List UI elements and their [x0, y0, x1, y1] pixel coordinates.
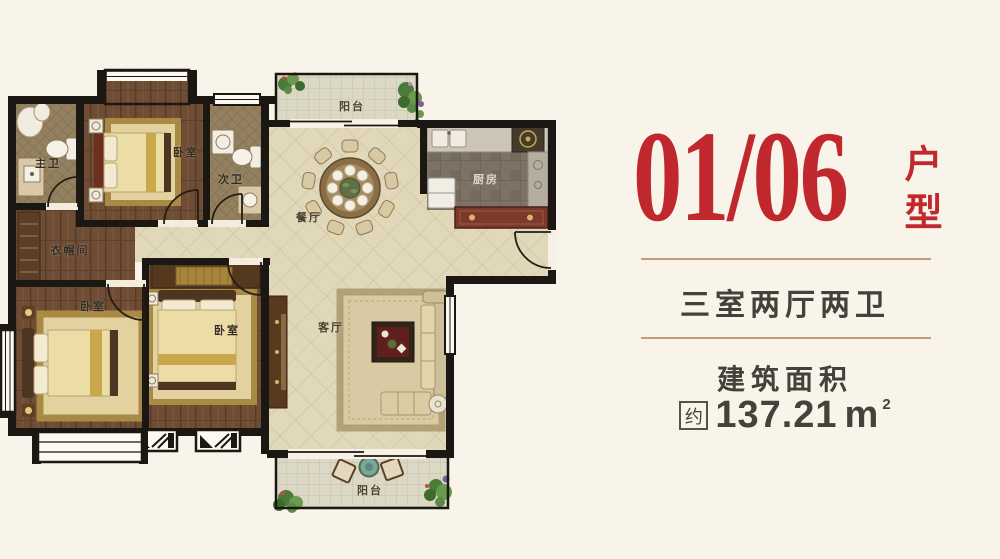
room-label-living: 客厅 — [318, 319, 344, 335]
bedroom-top-furniture — [89, 119, 178, 203]
approx-box: 约 — [679, 401, 708, 430]
bedroom-left-furniture — [22, 306, 142, 418]
divider-bottom — [641, 337, 931, 339]
floor-plan-poster: 主卫 卧室 次卫 阳台 餐厅 厨房 衣帽间 卧室 卧室 客厅 阳台 01/06 … — [0, 0, 1000, 559]
unit-number: 01/06 — [633, 112, 847, 242]
room-label-balcony-bottom: 阳台 — [357, 482, 383, 498]
layout-summary: 三室两厅两卫 — [620, 280, 950, 324]
floor-plan-graphic — [0, 0, 620, 559]
floor-plan: 主卫 卧室 次卫 阳台 餐厅 厨房 衣帽间 卧室 卧室 客厅 阳台 — [0, 0, 620, 559]
area-title: 建筑面积 — [620, 358, 950, 398]
window-glyph-b — [196, 430, 240, 451]
area-value-row: 约 137.21 m 2 — [620, 394, 950, 437]
room-label-balcony-top: 阳台 — [339, 98, 365, 114]
room-label-bedroom-middle: 卧室 — [214, 322, 240, 338]
room-label-bedroom-top: 卧室 — [173, 144, 199, 160]
divider-top — [641, 258, 931, 260]
room-label-second-bath: 次卫 — [218, 171, 244, 187]
room-label-kitchen: 厨房 — [473, 171, 499, 187]
room-label-dining: 餐厅 — [296, 209, 322, 225]
area-superscript: 2 — [882, 396, 890, 413]
room-label-bedroom-left: 卧室 — [80, 298, 106, 314]
unit-type-label: 户型 — [900, 144, 938, 240]
room-label-master-bath: 主卫 — [35, 155, 61, 171]
area-value: 137.21 — [715, 394, 837, 437]
area-unit: m — [845, 394, 880, 437]
cloakroom-wardrobe — [18, 212, 40, 282]
bedroom-middle-furniture — [146, 264, 260, 402]
info-panel: 01/06 户型 三室两厅两卫 建筑面积 约 137.21 m 2 — [620, 0, 960, 559]
room-label-cloakroom: 衣帽间 — [51, 242, 90, 258]
